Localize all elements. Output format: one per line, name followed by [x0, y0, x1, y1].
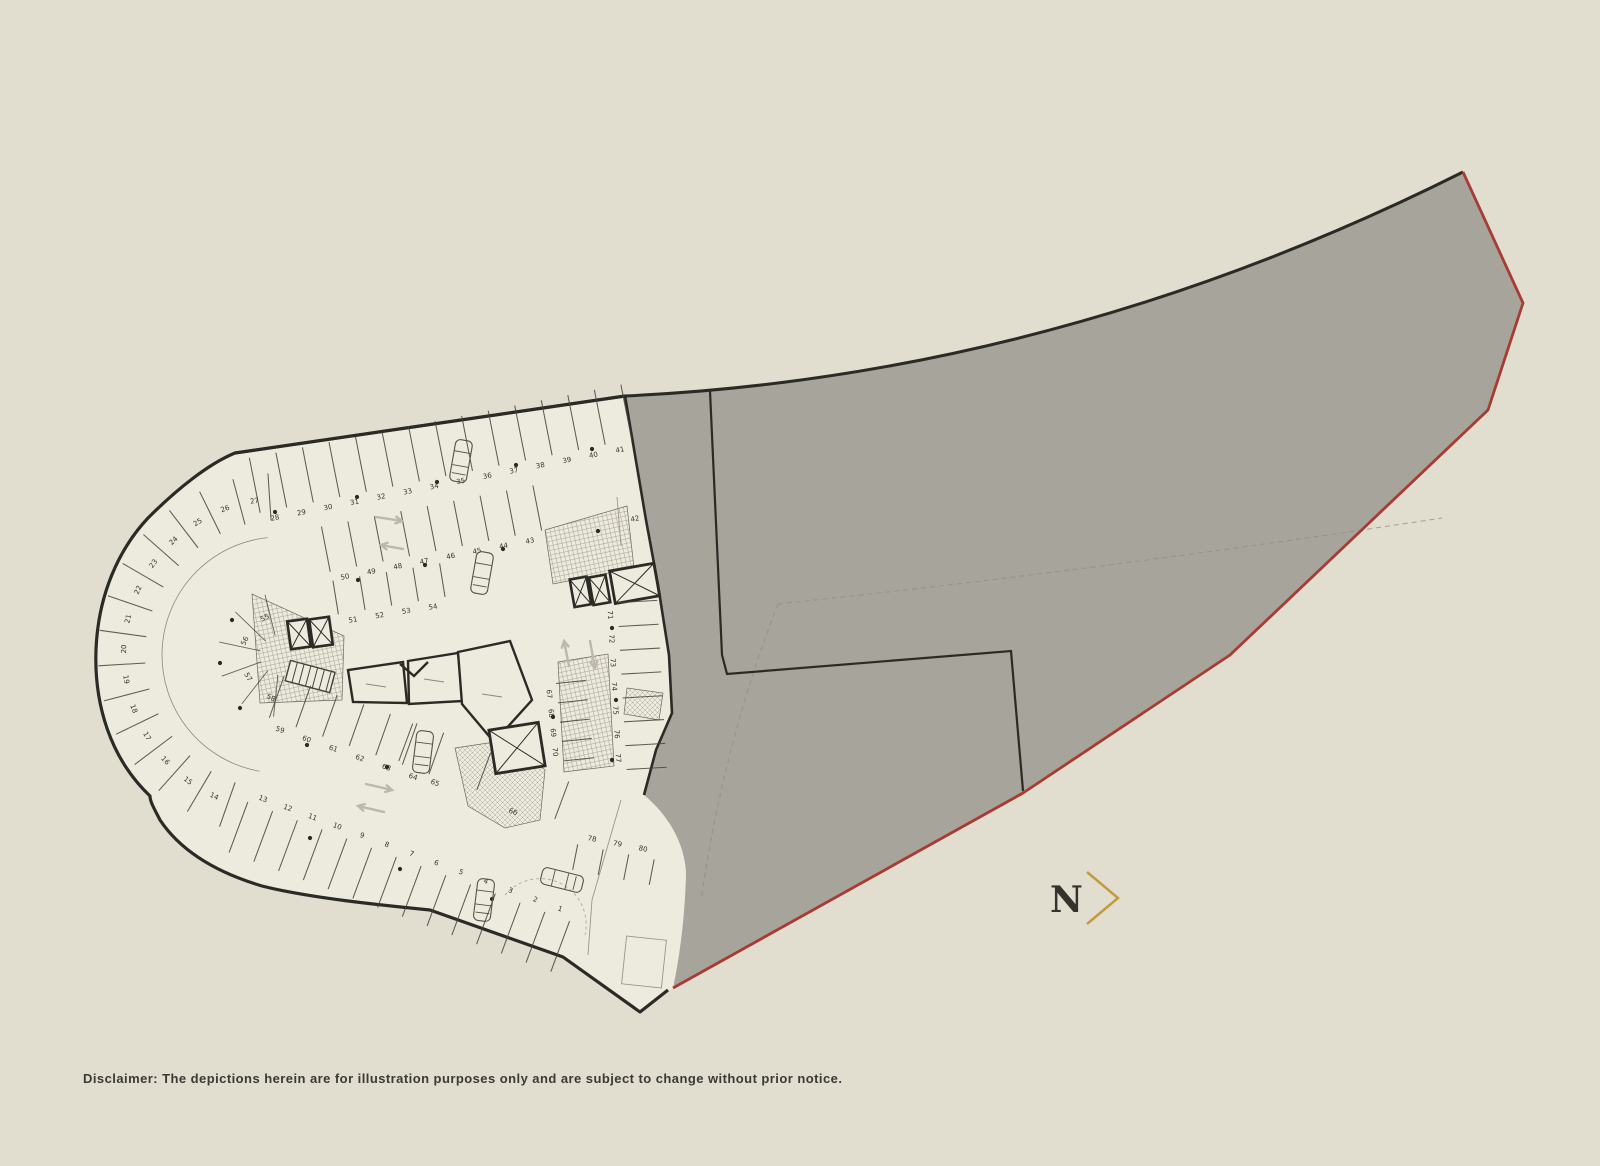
column-dot: [423, 563, 427, 567]
column-dot: [610, 626, 614, 630]
elevator-icon: [489, 722, 545, 773]
stall-number: 29: [296, 508, 306, 518]
column-dot: [398, 867, 402, 871]
column-dot: [356, 578, 360, 582]
stall-number: 41: [615, 445, 625, 455]
stall-number: 69: [549, 728, 558, 738]
column-dot: [590, 447, 594, 451]
stall-number: 79: [612, 839, 622, 849]
stall-number: 40: [588, 450, 598, 460]
stall-number: 75: [611, 706, 619, 715]
stall-number: 49: [366, 567, 376, 577]
stall-number: 72: [607, 634, 615, 643]
stall-number: 52: [375, 611, 385, 620]
hatched-area: [624, 688, 663, 720]
site-plan-drawing: 2829303132333435363738394041504948474645…: [0, 0, 1600, 1166]
north-label: N: [1050, 879, 1083, 921]
stall-number: 53: [401, 607, 411, 616]
elevator-icon: [309, 617, 333, 648]
stall-number: 71: [606, 610, 614, 619]
column-dot: [551, 715, 555, 719]
column-dot: [501, 547, 505, 551]
stall-number: 48: [393, 562, 403, 572]
column-dot: [610, 758, 614, 762]
site-plan-page: 2829303132333435363738394041504948474645…: [0, 0, 1600, 1166]
stall-number: 37: [509, 466, 519, 476]
stall-number: 67: [545, 689, 554, 699]
stall-number: 76: [612, 729, 621, 739]
stall-number: 51: [348, 615, 358, 624]
stall-number: 77: [614, 753, 622, 762]
elevator-icon: [589, 575, 611, 606]
hatched-area: [558, 654, 614, 772]
stall-number: 50: [340, 572, 350, 582]
stall-number: 70: [551, 747, 560, 757]
column-dot: [514, 463, 518, 467]
elevator-icon: [287, 619, 311, 650]
stall-number: 74: [610, 682, 619, 692]
column-dot: [218, 661, 222, 665]
stall-number: 80: [638, 844, 648, 854]
column-dot: [435, 480, 439, 484]
stall-number: 38: [535, 461, 545, 471]
column-dot: [355, 495, 359, 499]
stall-number: 19: [121, 674, 130, 684]
stall-number: 32: [376, 492, 386, 502]
disclaimer-text: Disclaimer: The depictions herein are fo…: [83, 1071, 842, 1086]
column-dot: [385, 765, 389, 769]
stall-number: 73: [608, 658, 616, 667]
stall-number: 20: [120, 644, 128, 653]
column-dot: [230, 618, 234, 622]
stall-number: 78: [587, 834, 597, 844]
core-room: [408, 653, 463, 704]
stall-number: 33: [403, 487, 413, 497]
stall-number: 27: [249, 496, 259, 505]
column-dot: [238, 706, 242, 710]
stall-number: 39: [562, 456, 572, 466]
column-dot: [273, 510, 277, 514]
stall-number: 43: [525, 536, 535, 546]
stall-number: 54: [428, 602, 439, 611]
column-dot: [308, 836, 312, 840]
column-dot: [305, 743, 309, 747]
stall-number: 30: [323, 503, 333, 513]
column-dot: [614, 698, 618, 702]
stall-number: 31: [349, 498, 359, 508]
stair-shaft-icon: [610, 563, 660, 603]
core-room: [348, 662, 407, 703]
column-dot: [596, 529, 600, 533]
